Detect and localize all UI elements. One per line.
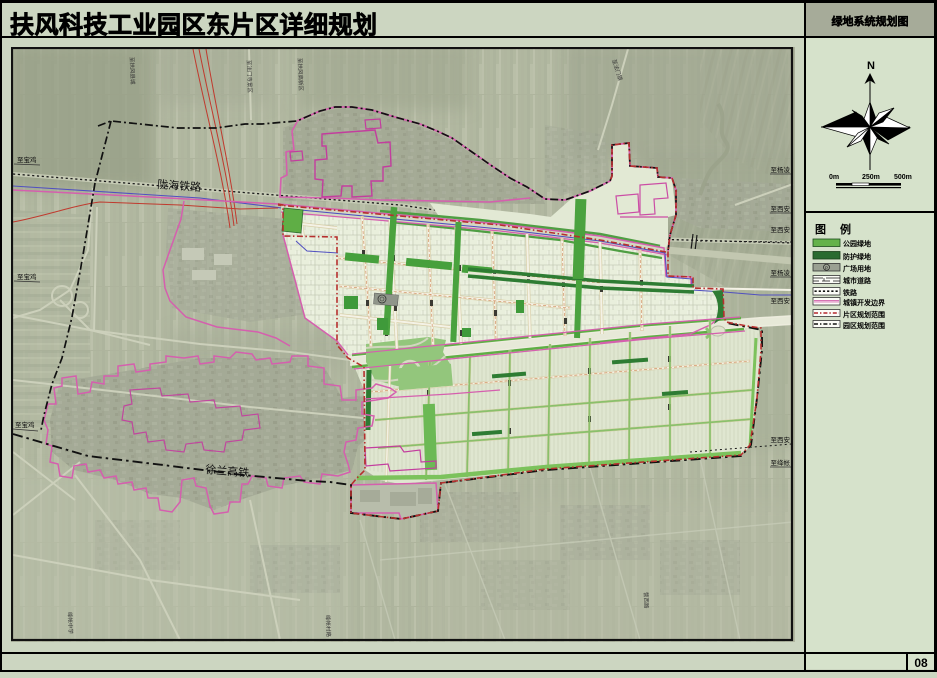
svg-text:至宝鸡: 至宝鸡 (15, 420, 35, 429)
svg-text:至西安: 至西安 (771, 225, 791, 234)
svg-text:至杨凌: 至杨凌 (771, 268, 791, 277)
svg-text:P: P (825, 265, 828, 270)
svg-text:至西安: 至西安 (771, 296, 791, 305)
svg-text:至绛帐: 至绛帐 (771, 458, 791, 467)
svg-text:至西安: 至西安 (771, 435, 791, 444)
svg-text:至宝鸡: 至宝鸡 (17, 155, 37, 164)
svg-text:至宝鸡: 至宝鸡 (17, 272, 37, 281)
svg-text:至西安: 至西安 (771, 204, 791, 213)
svg-text:至杨凌: 至杨凌 (771, 165, 791, 174)
